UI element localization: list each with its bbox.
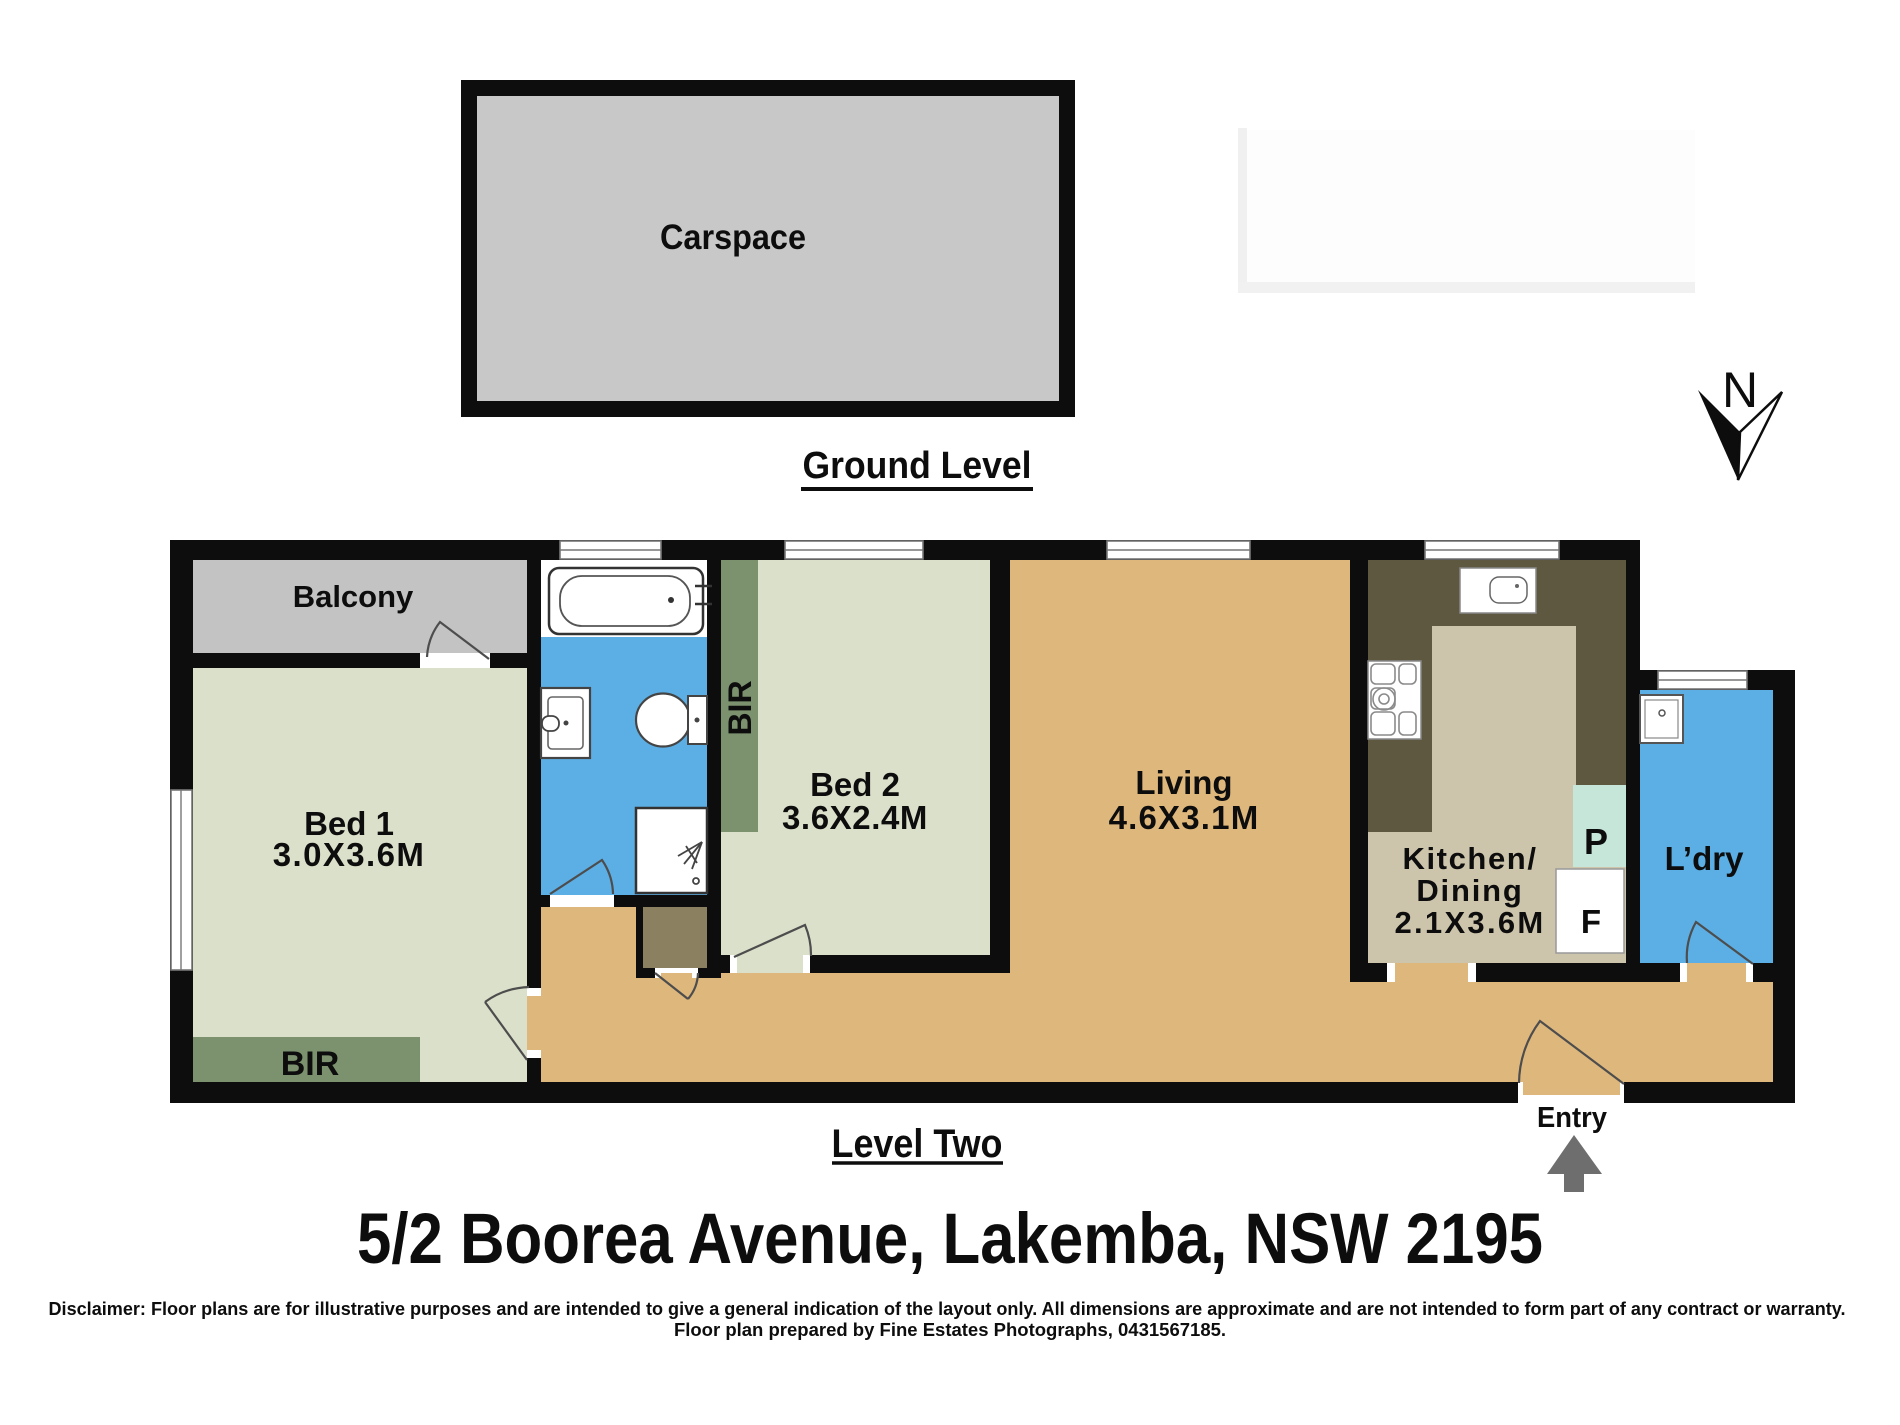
svg-text:P: P: [1584, 821, 1608, 862]
svg-text:Ground Level: Ground Level: [803, 445, 1032, 487]
svg-text:BIR: BIR: [722, 680, 758, 735]
svg-text:2.1X3.6M: 2.1X3.6M: [1394, 905, 1545, 940]
svg-text:Entry: Entry: [1537, 1102, 1607, 1134]
svg-text:Bed 2: Bed 2: [810, 766, 900, 803]
svg-text:Carspace: Carspace: [660, 218, 806, 257]
svg-text:Balcony: Balcony: [293, 579, 414, 614]
svg-text:3.6X2.4M: 3.6X2.4M: [782, 799, 928, 836]
svg-text:Dining: Dining: [1416, 873, 1523, 908]
svg-text:N: N: [1722, 362, 1758, 418]
svg-text:Floor plan prepared by Fine Es: Floor plan prepared by Fine Estates Phot…: [674, 1319, 1226, 1340]
svg-text:3.0X3.6M: 3.0X3.6M: [273, 836, 425, 873]
svg-text:L’dry: L’dry: [1665, 840, 1745, 877]
svg-text:4.6X3.1M: 4.6X3.1M: [1109, 799, 1260, 836]
svg-text:Disclaimer: Floor plans are fo: Disclaimer: Floor plans are for illustra…: [49, 1298, 1846, 1319]
svg-text:Living: Living: [1135, 764, 1232, 801]
svg-text:Kitchen/: Kitchen/: [1402, 841, 1537, 876]
svg-text:Level Two: Level Two: [832, 1122, 1003, 1166]
svg-text:BIR: BIR: [281, 1045, 340, 1083]
svg-text:5/2 Boorea Avenue, Lakemba, NS: 5/2 Boorea Avenue, Lakemba, NSW 2195: [357, 1200, 1543, 1279]
svg-text:F: F: [1581, 903, 1601, 940]
